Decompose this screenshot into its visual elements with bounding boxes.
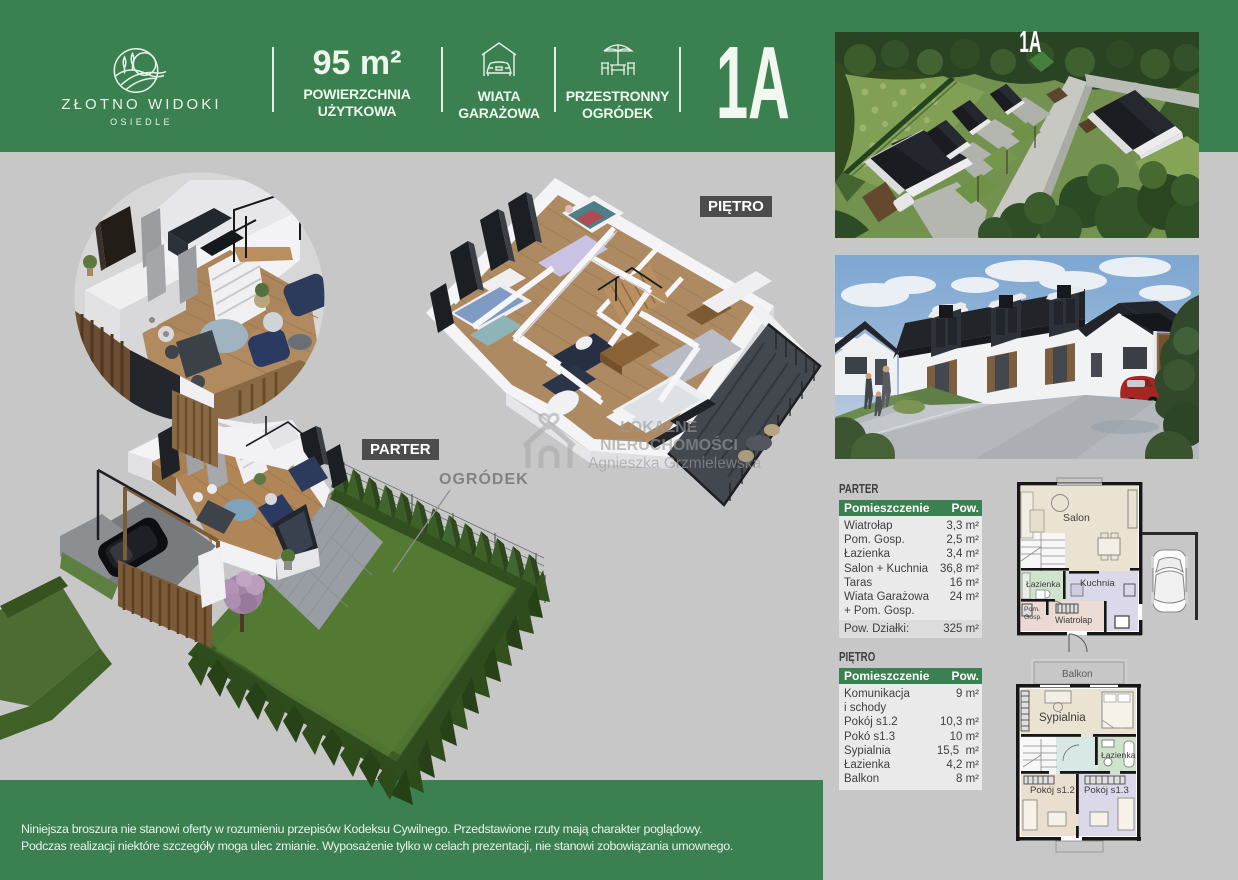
- svg-text:Wiatrołap: Wiatrołap: [1055, 615, 1092, 625]
- svg-text:Pom.: Pom.: [1024, 606, 1040, 613]
- svg-text:1A: 1A: [1019, 25, 1041, 60]
- svg-text:LOKALNE: LOKALNE: [620, 419, 698, 436]
- svg-text:Balkon: Balkon: [1062, 669, 1093, 680]
- svg-text:Pokój s1.2: Pokój s1.2: [1030, 785, 1075, 796]
- svg-text:Pokój s1.3: Pokój s1.3: [1084, 785, 1129, 796]
- svg-text:NIERUCHOMOŚCI: NIERUCHOMOŚCI: [600, 435, 738, 454]
- svg-text:Agnieszka Grzmielewska: Agnieszka Grzmielewska: [588, 455, 762, 472]
- svg-text:Łazienka: Łazienka: [1026, 579, 1061, 589]
- svg-text:Łazienka: Łazienka: [1101, 750, 1136, 760]
- svg-text:Sypialnia: Sypialnia: [1039, 712, 1086, 724]
- svg-text:Salon: Salon: [1063, 512, 1090, 524]
- svg-text:Gosp.: Gosp.: [1024, 614, 1042, 621]
- svg-text:Kuchnia: Kuchnia: [1080, 578, 1115, 589]
